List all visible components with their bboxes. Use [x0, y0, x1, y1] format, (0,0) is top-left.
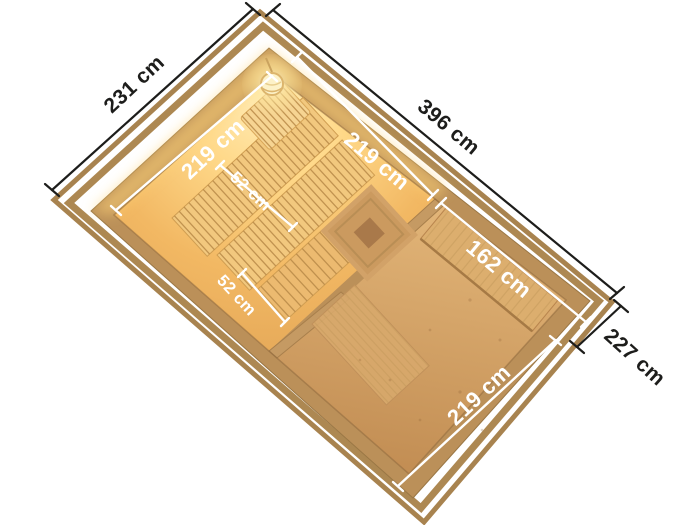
sauna-floorplan-image: 231 cm 396 cm 227 cm 219 cm 219 cm 52 cm… — [0, 0, 700, 525]
sauna-lamp-icon — [242, 54, 302, 114]
dimension-label-227: 227 cm — [600, 324, 670, 390]
product-diagram: 231 cm 396 cm 227 cm 219 cm 219 cm 52 cm… — [0, 0, 700, 525]
